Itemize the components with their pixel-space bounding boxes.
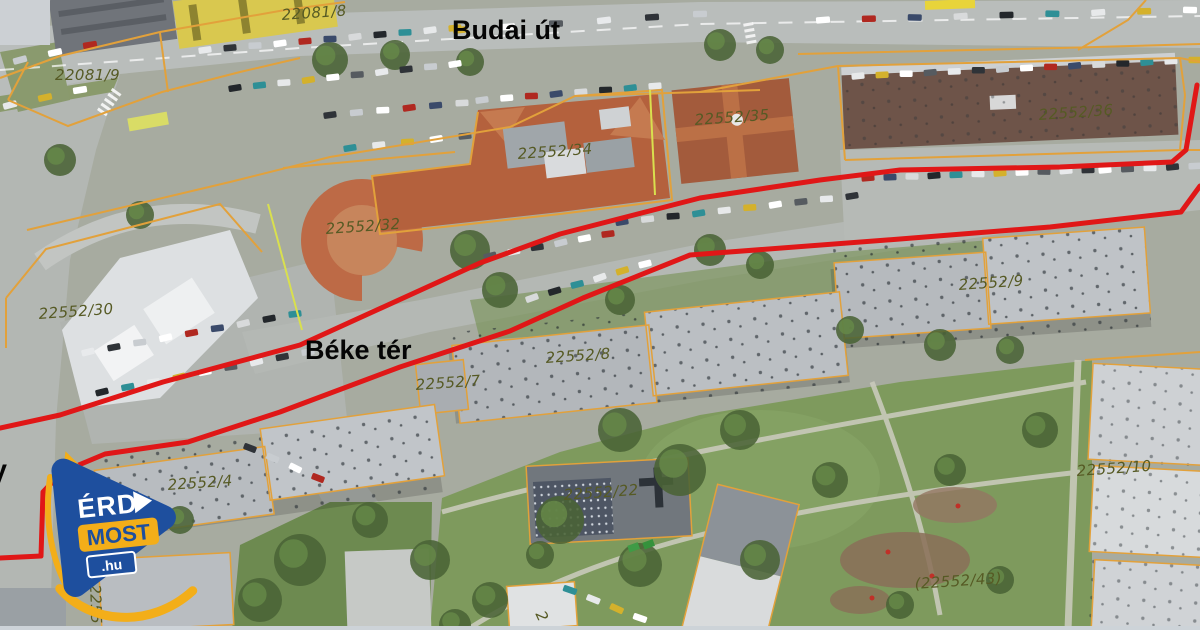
car (277, 79, 290, 86)
car (248, 42, 261, 49)
car (666, 213, 679, 220)
car (350, 109, 364, 117)
car (376, 107, 389, 114)
car (599, 87, 612, 94)
car (1143, 165, 1156, 172)
building (1079, 363, 1200, 630)
car (1183, 7, 1197, 14)
aerial-map: 22081/822081/922552/3422552/3522552/3622… (0, 0, 1200, 630)
car (1020, 64, 1033, 71)
car (323, 36, 336, 43)
car (996, 65, 1010, 73)
car (398, 29, 411, 36)
car (927, 172, 941, 180)
car (501, 23, 515, 30)
bottom-edge-strip (0, 626, 1200, 630)
car (999, 12, 1013, 19)
car (816, 16, 830, 24)
car (1091, 9, 1105, 17)
car (424, 63, 437, 70)
car (1045, 10, 1059, 17)
car (648, 82, 661, 90)
car (900, 70, 913, 77)
car (953, 12, 967, 20)
car (429, 102, 443, 110)
car (1092, 61, 1105, 68)
car (905, 173, 918, 180)
car (693, 11, 707, 18)
car (1044, 64, 1057, 71)
building (841, 53, 1178, 149)
car (949, 171, 962, 178)
car (923, 69, 937, 77)
car (972, 67, 985, 74)
car (549, 20, 563, 27)
car (645, 13, 659, 20)
car (525, 93, 538, 100)
car (1116, 60, 1129, 67)
car (351, 71, 364, 78)
car (875, 71, 888, 78)
car (1188, 162, 1200, 169)
car (908, 14, 922, 21)
car (971, 171, 984, 178)
car (223, 44, 237, 52)
car (500, 94, 513, 102)
car (298, 37, 312, 45)
car (883, 174, 896, 181)
car (373, 31, 387, 39)
car (455, 100, 468, 107)
erdmost-logo[interactable]: ÉRD MOST .hu (40, 440, 255, 630)
building (672, 78, 799, 184)
car (743, 204, 756, 211)
car (1068, 62, 1082, 70)
car (948, 68, 961, 75)
logo-line1: ÉRD (76, 487, 139, 524)
car (820, 195, 833, 202)
car (862, 15, 876, 22)
logo-line3: .hu (100, 556, 123, 574)
building (0, 0, 50, 45)
car (851, 72, 865, 80)
